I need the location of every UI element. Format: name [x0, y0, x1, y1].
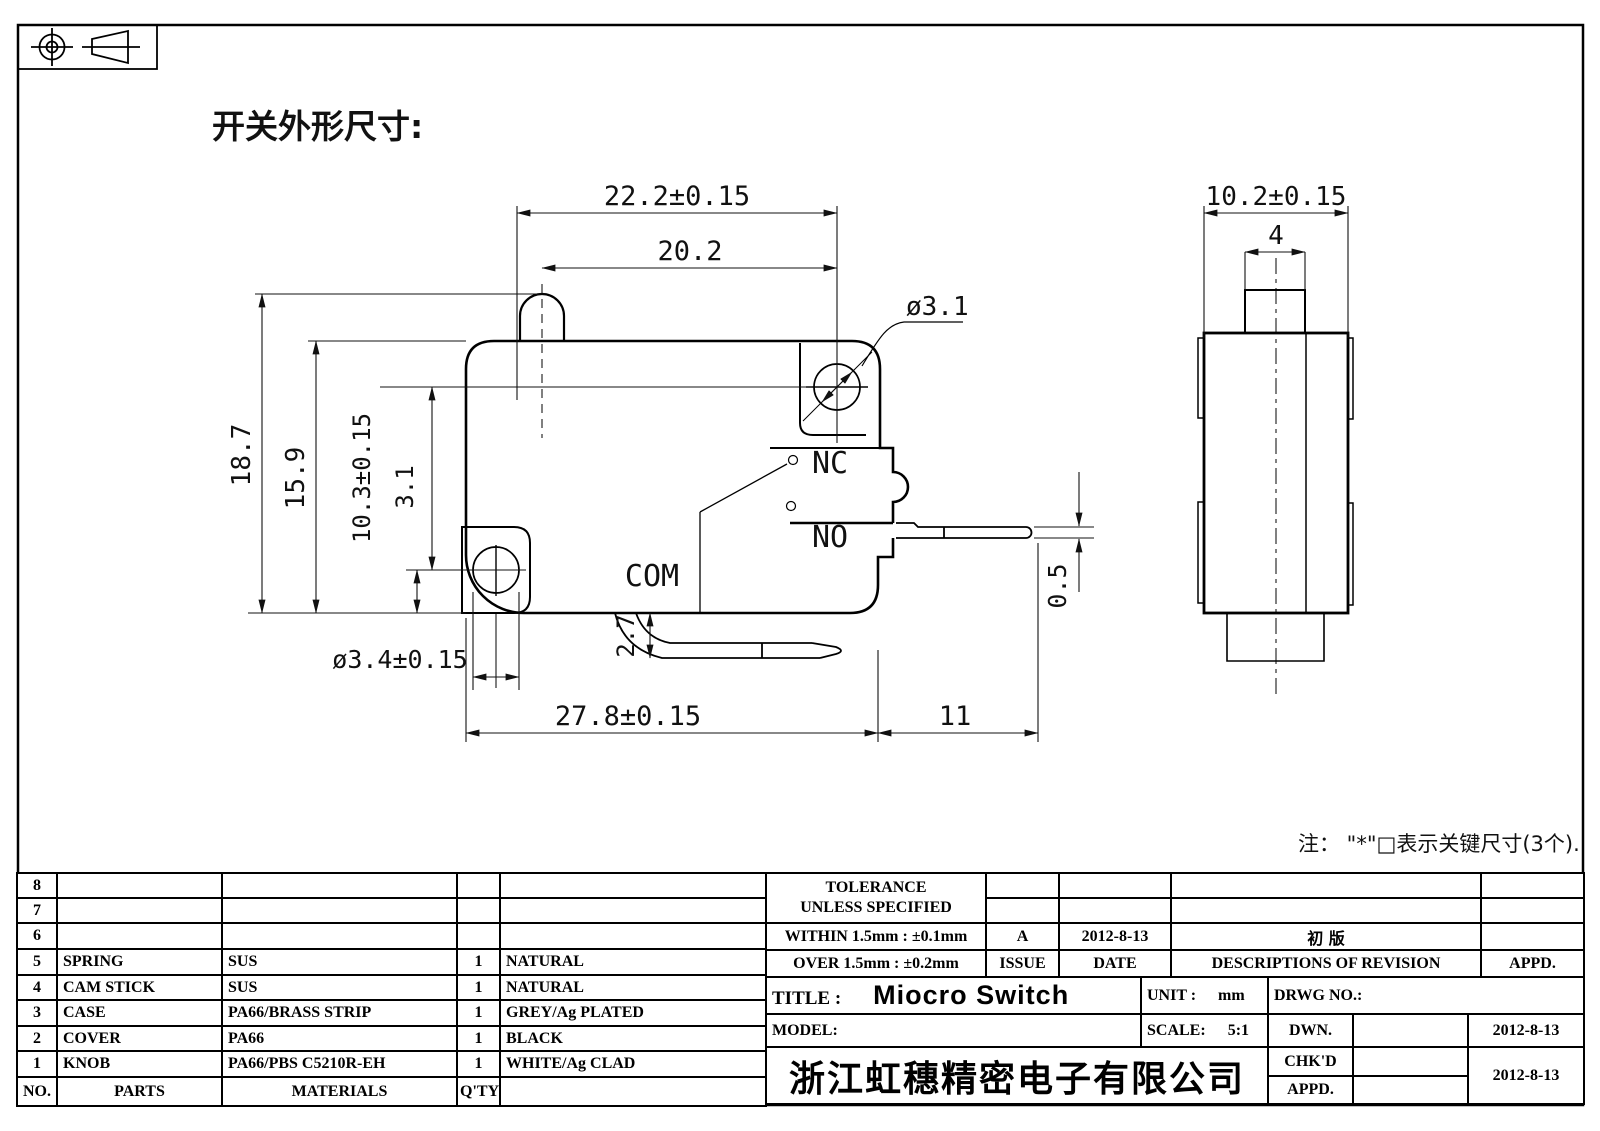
title-block: TITLE : Miocro Switch UNIT : mm DRWG NO.… [765, 976, 1585, 1105]
dwn-signature-cell [1353, 1014, 1468, 1047]
scale-cell: SCALE: 5:1 [1141, 1014, 1268, 1047]
part-material [222, 923, 457, 949]
table-row: 1 KNOB PA66/PBS C5210R-EH 1 WHITE/Ag CLA… [17, 1051, 766, 1077]
dim-hole-3-1: ø3.1 [906, 292, 969, 322]
key-dimension-note: 注： "*"□表示关键尺寸(3个). [1298, 832, 1580, 856]
part-name: CASE [57, 1000, 222, 1026]
chkd-label: CHK'D [1268, 1047, 1353, 1076]
part-material: PA66/BRASS STRIP [222, 1000, 457, 1026]
table-row: 4 CAM STICK SUS 1 NATURAL [17, 975, 766, 1000]
unit-value: mm [1218, 987, 1245, 1004]
drwg-no-cell: DRWG NO.: [1268, 977, 1584, 1014]
part-qty [457, 873, 500, 898]
part-finish [500, 923, 766, 949]
chkd-appd-date: 2012-8-13 [1468, 1047, 1584, 1104]
part-material: PA66/PBS C5210R-EH [222, 1051, 457, 1077]
empty-cell [986, 873, 1059, 898]
revision-block: TOLERANCE UNLESS SPECIFIED WITHIN 1.5mm … [765, 872, 1585, 978]
part-material [222, 898, 457, 923]
model-cell: MODEL: [766, 1014, 1141, 1047]
empty-cell [986, 898, 1059, 923]
dwn-date: 2012-8-13 [1468, 1014, 1584, 1047]
appd-label: APPD. [1481, 950, 1584, 977]
drawing-sheet: { "header": { "title": "开关外形尺寸:" }, "not… [0, 0, 1600, 1131]
dwn-label: DWN. [1268, 1014, 1353, 1047]
no-label: NO [812, 520, 848, 555]
dim-20-2: 20.2 [657, 236, 722, 267]
parts-header-row: NO. PARTS MATERIALS Q'TY [17, 1077, 766, 1106]
part-no: 1 [17, 1051, 57, 1077]
part-finish: NATURAL [500, 975, 766, 1000]
tolerance-over: OVER 1.5mm : ±0.2mm [766, 950, 986, 977]
part-no: 8 [17, 873, 57, 898]
empty-cell [1059, 873, 1171, 898]
table-row: 5 SPRING SUS 1 NATURAL [17, 949, 766, 975]
part-name: KNOB [57, 1051, 222, 1077]
empty-cell [1481, 873, 1584, 898]
col-header-finish [500, 1077, 766, 1106]
dim-10-2: 10.2±0.15 [1206, 182, 1347, 212]
company-name: 浙江虹穗精密电子有限公司 [766, 1047, 1268, 1104]
empty-cell [1481, 898, 1584, 923]
part-finish: BLACK [500, 1026, 766, 1051]
part-finish: WHITE/Ag CLAD [500, 1051, 766, 1077]
issue-date-value: 2012-8-13 [1059, 923, 1171, 950]
dim-0-5: 0.5 [1043, 563, 1072, 608]
empty-cell [1059, 898, 1171, 923]
title-label: TITLE : [772, 988, 841, 1009]
dim-27-8: 27.8±0.15 [555, 701, 701, 732]
nc-label: NC [812, 446, 848, 481]
dim-10-3: 10.3±0.15 [348, 413, 376, 543]
part-no: 3 [17, 1000, 57, 1026]
unit-label: UNIT : [1147, 987, 1196, 1004]
parts-table: 8 7 6 5 SPRING SUS 1 NATURAL [16, 872, 767, 1107]
part-name: CAM STICK [57, 975, 222, 1000]
page-title: 开关外形尺寸: [212, 107, 423, 146]
col-header-no: NO. [17, 1077, 57, 1106]
appd-row-label: APPD. [1268, 1076, 1353, 1104]
part-qty [457, 923, 500, 949]
table-row: 3 CASE PA66/BRASS STRIP 1 GREY/Ag PLATED [17, 1000, 766, 1026]
part-name [57, 898, 222, 923]
table-row: 6 [17, 923, 766, 949]
dim-3-1: 3.1 [391, 465, 419, 508]
part-name: SPRING [57, 949, 222, 975]
dim-4: 4 [1268, 221, 1284, 251]
dim-22-2: 22.2±0.15 [604, 181, 750, 212]
internal-contacts [700, 448, 893, 613]
part-qty: 1 [457, 1026, 500, 1051]
part-finish: GREY/Ag PLATED [500, 1000, 766, 1026]
appd-signature-cell [1353, 1076, 1468, 1104]
drawing-title: Miocro Switch [873, 980, 1069, 1010]
part-finish [500, 873, 766, 898]
part-material [222, 873, 457, 898]
part-qty: 1 [457, 949, 500, 975]
empty-cell [1171, 873, 1481, 898]
table-row: 7 [17, 898, 766, 923]
chkd-signature-cell [1353, 1047, 1468, 1076]
table-row: 8 [17, 873, 766, 898]
part-name [57, 923, 222, 949]
com-terminal [615, 613, 841, 658]
part-no: 2 [17, 1026, 57, 1051]
part-qty: 1 [457, 1051, 500, 1077]
part-qty: 1 [457, 1000, 500, 1026]
date-label: DATE [1059, 950, 1171, 977]
scale-label: SCALE: [1147, 1022, 1206, 1039]
empty-cell [1171, 898, 1481, 923]
title-cell: TITLE : Miocro Switch [766, 977, 1141, 1014]
part-material: SUS [222, 949, 457, 975]
dim-2-7: 2.7 [612, 614, 640, 657]
issue-label: ISSUE [986, 950, 1059, 977]
dim-11: 11 [939, 701, 972, 732]
dim-15-9: 15.9 [281, 447, 311, 510]
col-header-materials: MATERIALS [222, 1077, 457, 1106]
part-qty: 1 [457, 975, 500, 1000]
issue-value: A [986, 923, 1059, 950]
part-no: 6 [17, 923, 57, 949]
unit-cell: UNIT : mm [1141, 977, 1268, 1014]
col-header-parts: PARTS [57, 1077, 222, 1106]
tolerance-subtitle: UNLESS SPECIFIED [772, 898, 980, 918]
empty-cell [1481, 923, 1584, 950]
revision-description: 初 版 [1171, 923, 1481, 950]
front-view: NC NO COM [462, 284, 1032, 688]
part-finish [500, 898, 766, 923]
part-qty [457, 898, 500, 923]
part-material: SUS [222, 975, 457, 1000]
side-view [1198, 258, 1353, 697]
mounting-boss-top [800, 343, 866, 435]
side-plunger [1245, 290, 1305, 333]
scale-value: 5:1 [1228, 1022, 1249, 1039]
table-row: 2 COVER PA66 1 BLACK [17, 1026, 766, 1051]
tolerance-within: WITHIN 1.5mm : ±0.1mm [766, 923, 986, 950]
revision-label: DESCRIPTIONS OF REVISION [1171, 950, 1481, 977]
part-material: PA66 [222, 1026, 457, 1051]
first-angle-projection-icon [18, 25, 157, 69]
part-name: COVER [57, 1026, 222, 1051]
part-finish: NATURAL [500, 949, 766, 975]
part-no: 4 [17, 975, 57, 1000]
part-no: 7 [17, 898, 57, 923]
col-header-qty: Q'TY [457, 1077, 500, 1106]
part-name [57, 873, 222, 898]
dim-3-4: ø3.4±0.15 [332, 645, 467, 674]
tolerance-title: TOLERANCE [772, 878, 980, 898]
dim-18-7: 18.7 [227, 424, 257, 487]
com-label: COM [625, 559, 679, 594]
no-terminal [896, 523, 1032, 538]
part-no: 5 [17, 949, 57, 975]
tolerance-header: TOLERANCE UNLESS SPECIFIED [766, 873, 986, 923]
